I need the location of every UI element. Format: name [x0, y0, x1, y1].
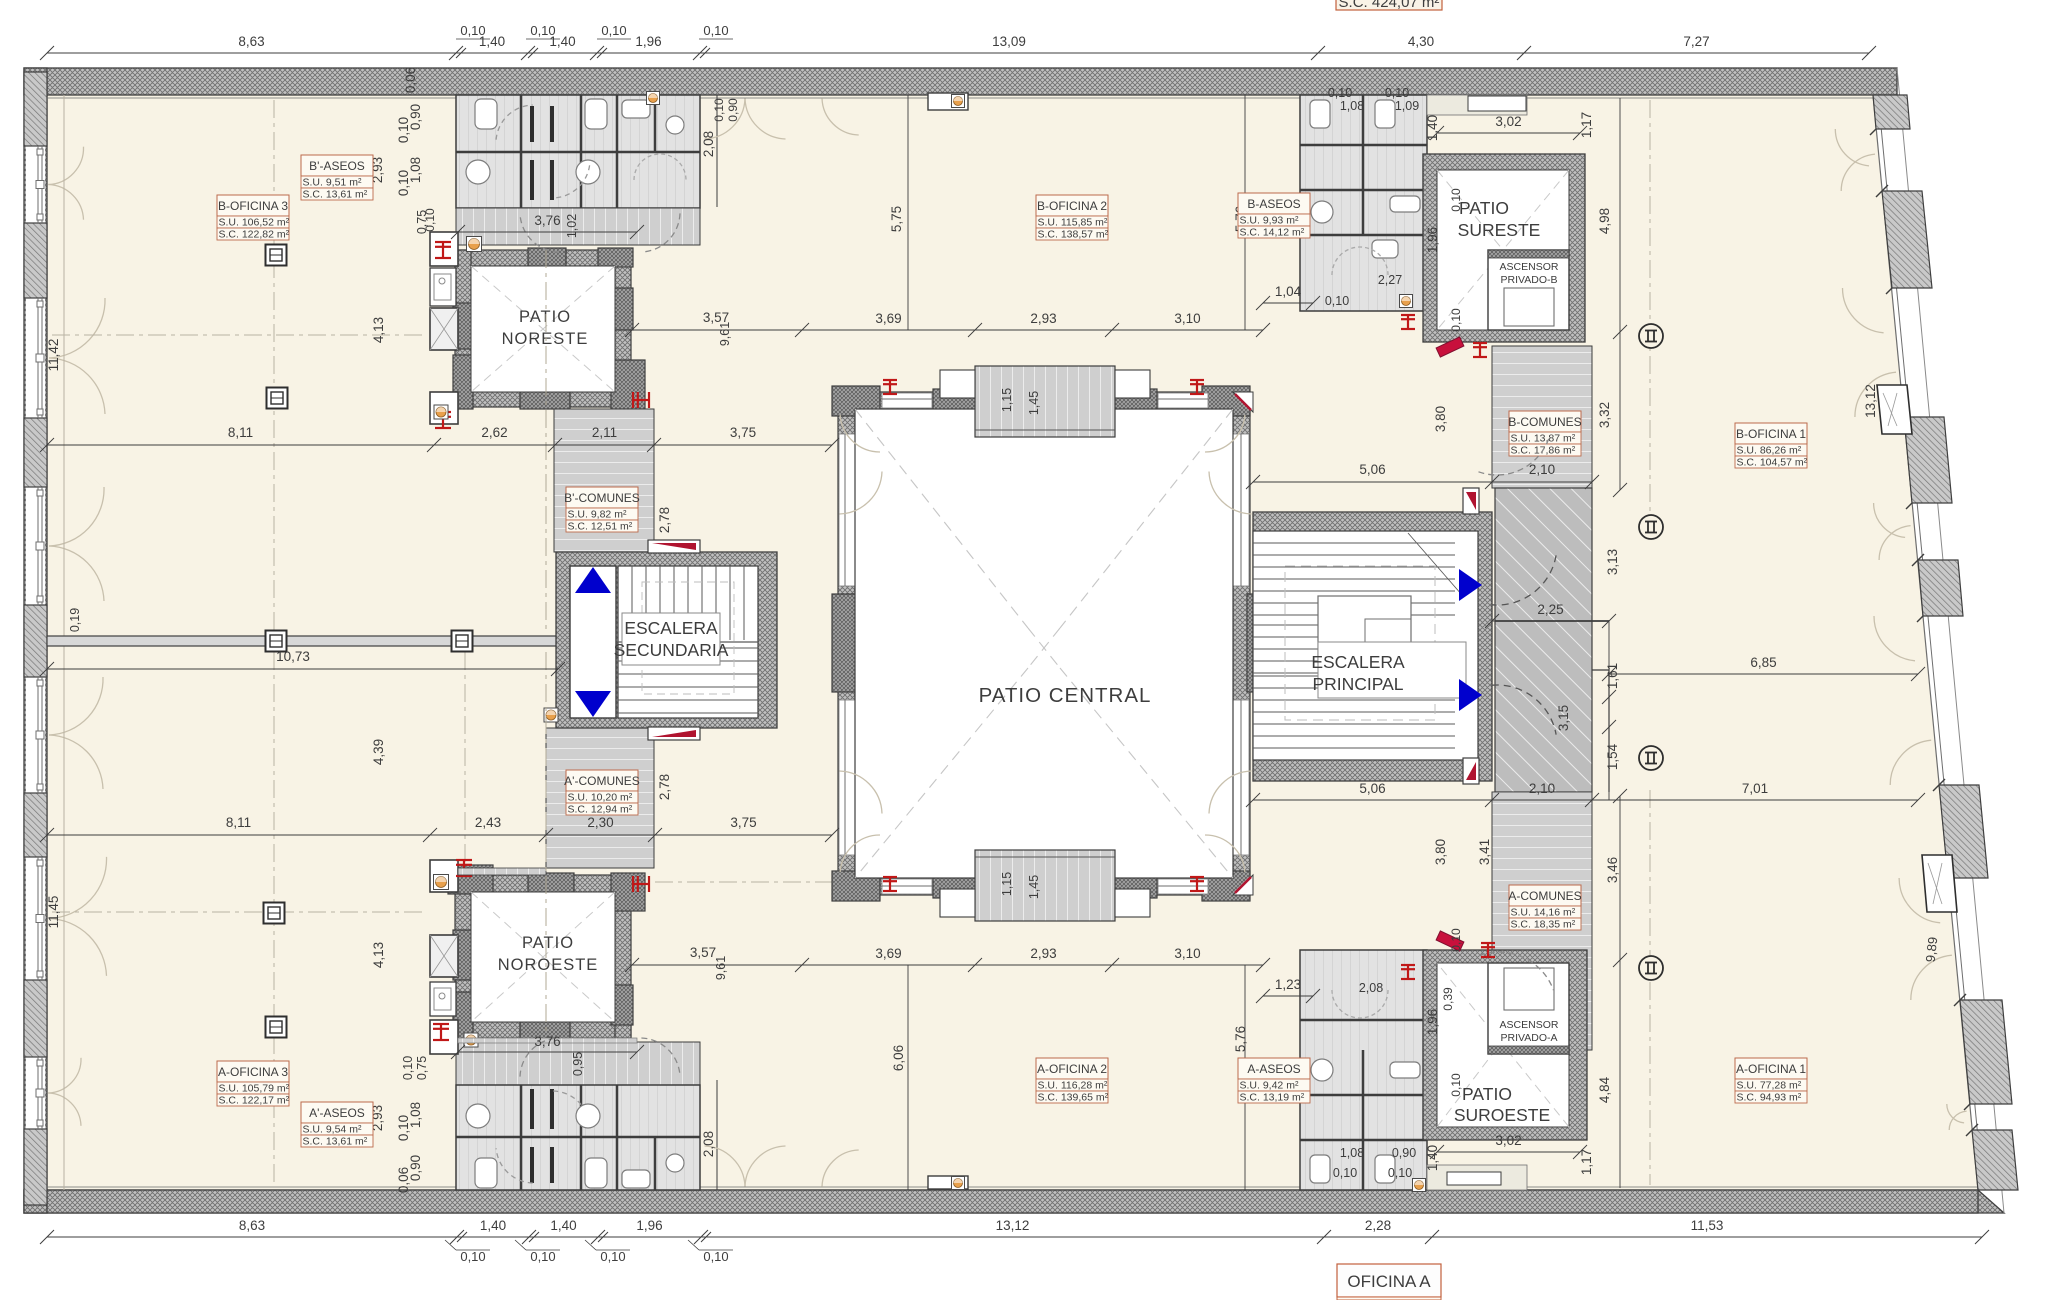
- svg-text:8,63: 8,63: [239, 1218, 265, 1233]
- svg-text:3,32: 3,32: [1597, 402, 1612, 428]
- svg-text:1,15: 1,15: [1000, 388, 1014, 412]
- svg-text:3,69: 3,69: [875, 311, 901, 326]
- svg-text:1,23: 1,23: [1275, 977, 1301, 992]
- svg-text:3,69: 3,69: [875, 946, 901, 961]
- svg-text:S.U. 115,85 m²: S.U. 115,85 m²: [1038, 217, 1108, 229]
- svg-text:2,28: 2,28: [1365, 1218, 1391, 1233]
- svg-text:0,10: 0,10: [1333, 1166, 1357, 1180]
- svg-text:S.U. 86,26 m²: S.U. 86,26 m²: [1737, 445, 1802, 457]
- svg-text:6,85: 6,85: [1750, 655, 1776, 670]
- svg-text:0,75: 0,75: [415, 1056, 429, 1080]
- svg-text:2,08: 2,08: [701, 1131, 716, 1157]
- svg-text:S.C. 12,94 m²: S.C. 12,94 m²: [568, 804, 633, 816]
- svg-text:PRIVADO-A: PRIVADO-A: [1501, 1032, 1558, 1044]
- svg-text:7,27: 7,27: [1683, 34, 1709, 49]
- svg-text:3,02: 3,02: [1495, 114, 1521, 129]
- svg-text:S.C. 104,57 m²: S.C. 104,57 m²: [1737, 457, 1808, 469]
- svg-text:0,10: 0,10: [1449, 1073, 1463, 1097]
- svg-text:1,45: 1,45: [1027, 391, 1041, 415]
- svg-text:4,84: 4,84: [1597, 1076, 1612, 1103]
- svg-text:10,73: 10,73: [276, 649, 310, 664]
- svg-text:PATIO CENTRAL: PATIO CENTRAL: [979, 684, 1152, 707]
- svg-text:0,10: 0,10: [460, 1249, 485, 1264]
- svg-text:2,78: 2,78: [657, 774, 672, 800]
- svg-text:0,10: 0,10: [600, 1249, 625, 1264]
- svg-text:PRINCIPAL: PRINCIPAL: [1312, 674, 1403, 694]
- svg-text:4,13: 4,13: [371, 317, 386, 343]
- svg-text:0,10: 0,10: [1388, 1166, 1412, 1180]
- svg-text:2,43: 2,43: [475, 815, 501, 830]
- svg-text:5,75: 5,75: [889, 206, 904, 232]
- svg-text:S.U. 9,93 m²: S.U. 9,93 m²: [1240, 215, 1299, 227]
- svg-text:1,04: 1,04: [1275, 284, 1302, 299]
- svg-text:2,78: 2,78: [657, 507, 672, 533]
- svg-text:A-OFICINA 2: A-OFICINA 2: [1037, 1062, 1107, 1076]
- svg-text:0,10: 0,10: [1449, 308, 1463, 332]
- svg-text:8,11: 8,11: [226, 815, 251, 830]
- svg-text:9,61: 9,61: [714, 956, 728, 980]
- svg-text:S.C. 18,35 m²: S.C. 18,35 m²: [1511, 919, 1576, 931]
- svg-text:0,10: 0,10: [530, 23, 555, 38]
- svg-text:1,40: 1,40: [1425, 1145, 1440, 1171]
- svg-text:SUROESTE: SUROESTE: [1454, 1105, 1550, 1125]
- svg-text:2,62: 2,62: [481, 425, 507, 440]
- svg-text:0,39: 0,39: [1441, 987, 1455, 1011]
- svg-text:2,93: 2,93: [1030, 311, 1056, 326]
- svg-text:3,80: 3,80: [1433, 406, 1448, 432]
- svg-text:B-OFICINA 2: B-OFICINA 2: [1037, 199, 1107, 213]
- svg-text:0,10: 0,10: [703, 1249, 728, 1264]
- svg-text:11,53: 11,53: [1691, 1218, 1724, 1233]
- svg-text:0,10: 0,10: [423, 208, 437, 232]
- svg-text:0,10: 0,10: [460, 23, 485, 38]
- svg-text:S.U. 116,28 m²: S.U. 116,28 m²: [1038, 1080, 1108, 1092]
- svg-text:B-OFICINA 1: B-OFICINA 1: [1736, 427, 1806, 441]
- svg-text:0,19: 0,19: [68, 608, 82, 632]
- svg-text:ASCENSOR: ASCENSOR: [1500, 261, 1559, 273]
- svg-text:2,08: 2,08: [1359, 981, 1383, 995]
- svg-text:1,15: 1,15: [1000, 872, 1014, 896]
- svg-text:0,06: 0,06: [403, 67, 418, 93]
- svg-text:0,06: 0,06: [396, 1167, 411, 1193]
- svg-text:9,61: 9,61: [718, 322, 732, 346]
- svg-text:A-OFICINA 1: A-OFICINA 1: [1736, 1062, 1806, 1076]
- svg-text:ESCALERA: ESCALERA: [1311, 652, 1405, 672]
- svg-text:B-OFICINA 3: B-OFICINA 3: [218, 199, 288, 213]
- svg-text:5,06: 5,06: [1359, 781, 1385, 796]
- svg-text:S.U. 9,54 m²: S.U. 9,54 m²: [303, 1124, 362, 1136]
- svg-text:3,13: 3,13: [1605, 549, 1620, 575]
- svg-text:3,15: 3,15: [1556, 705, 1571, 731]
- svg-text:1,08: 1,08: [1340, 99, 1364, 113]
- svg-text:1,96: 1,96: [635, 34, 661, 49]
- svg-text:S.C. 122,82 m²: S.C. 122,82 m²: [219, 229, 290, 241]
- svg-text:0,10: 0,10: [396, 1115, 411, 1141]
- svg-text:2,93: 2,93: [1030, 946, 1056, 961]
- svg-text:2,25: 2,25: [1537, 602, 1563, 617]
- svg-text:ASCENSOR: ASCENSOR: [1500, 1019, 1559, 1031]
- svg-text:0,10: 0,10: [1385, 86, 1409, 100]
- svg-text:3,76: 3,76: [534, 1034, 560, 1049]
- svg-text:5,06: 5,06: [1359, 462, 1385, 477]
- svg-text:0,95: 0,95: [571, 1052, 585, 1076]
- svg-text:S.C. 13,61 m²: S.C. 13,61 m²: [303, 189, 368, 201]
- svg-text:S.C. 13,19 m²: S.C. 13,19 m²: [1240, 1092, 1305, 1104]
- svg-text:0,10: 0,10: [1449, 928, 1463, 952]
- svg-text:S.U. 13,87 m²: S.U. 13,87 m²: [1511, 433, 1576, 445]
- svg-text:0,10: 0,10: [401, 1056, 415, 1080]
- svg-text:3,10: 3,10: [1174, 311, 1200, 326]
- svg-text:0,10: 0,10: [396, 117, 411, 143]
- svg-text:6,06: 6,06: [891, 1045, 906, 1071]
- svg-text:0,10: 0,10: [601, 23, 626, 38]
- svg-text:1,17: 1,17: [1579, 112, 1594, 138]
- svg-text:B'-ASEOS: B'-ASEOS: [309, 159, 365, 173]
- svg-text:A'-COMUNES: A'-COMUNES: [564, 774, 640, 788]
- svg-text:11,42: 11,42: [46, 339, 61, 372]
- svg-text:3,10: 3,10: [1174, 946, 1200, 961]
- svg-text:NORESTE: NORESTE: [502, 330, 589, 348]
- svg-text:OFICINA A: OFICINA A: [1347, 1272, 1431, 1291]
- svg-text:0,10: 0,10: [1325, 294, 1349, 308]
- svg-text:S.U. 77,28 m²: S.U. 77,28 m²: [1737, 1080, 1802, 1092]
- svg-text:S.C. 122,17 m²: S.C. 122,17 m²: [219, 1095, 290, 1107]
- svg-text:1,45: 1,45: [1027, 875, 1041, 899]
- svg-text:1,02: 1,02: [565, 214, 579, 238]
- svg-text:S.U. 14,16 m²: S.U. 14,16 m²: [1511, 907, 1576, 919]
- svg-text:0,10: 0,10: [396, 170, 411, 196]
- svg-text:S.C. 94,93 m²: S.C. 94,93 m²: [1737, 1092, 1802, 1104]
- svg-text:1,96: 1,96: [1425, 227, 1440, 253]
- svg-text:2,08: 2,08: [701, 131, 716, 157]
- svg-text:S.U. 106,52 m²: S.U. 106,52 m²: [219, 217, 290, 229]
- svg-text:8,63: 8,63: [238, 34, 264, 49]
- svg-text:2,30: 2,30: [587, 815, 613, 830]
- svg-text:1,40: 1,40: [550, 1218, 576, 1233]
- svg-text:3,41: 3,41: [1477, 839, 1492, 865]
- svg-text:PATIO: PATIO: [522, 934, 574, 952]
- svg-text:0,10: 0,10: [530, 1249, 555, 1264]
- svg-text:B-COMUNES: B-COMUNES: [1508, 415, 1581, 429]
- svg-text:2,10: 2,10: [1529, 462, 1555, 477]
- svg-text:2,27: 2,27: [1378, 273, 1402, 287]
- svg-text:S.C. 12,51 m²: S.C. 12,51 m²: [568, 521, 633, 533]
- svg-text:9,89: 9,89: [1923, 936, 1941, 963]
- svg-text:1,40: 1,40: [480, 1218, 506, 1233]
- svg-text:3,80: 3,80: [1433, 839, 1448, 865]
- svg-text:ESCALERA: ESCALERA: [624, 618, 718, 638]
- svg-text:S.C. 14,12 m²: S.C. 14,12 m²: [1240, 227, 1305, 239]
- svg-text:PATIO: PATIO: [519, 308, 571, 326]
- svg-text:13,12: 13,12: [1863, 384, 1878, 418]
- svg-text:0,90: 0,90: [726, 98, 740, 122]
- svg-text:5,76: 5,76: [1233, 1026, 1248, 1052]
- svg-text:SECUNDARIA: SECUNDARIA: [614, 640, 729, 660]
- svg-text:B'-COMUNES: B'-COMUNES: [564, 491, 640, 505]
- svg-text:13,12: 13,12: [996, 1218, 1030, 1233]
- svg-text:1,17: 1,17: [1579, 1149, 1594, 1175]
- svg-text:1,61: 1,61: [1605, 663, 1620, 689]
- svg-text:0,10: 0,10: [703, 23, 728, 38]
- svg-text:PATIO: PATIO: [1459, 198, 1509, 218]
- svg-text:3,75: 3,75: [730, 815, 756, 830]
- svg-text:A-OFICINA 3: A-OFICINA 3: [218, 1065, 288, 1079]
- svg-text:13,09: 13,09: [992, 34, 1026, 49]
- svg-text:NOROESTE: NOROESTE: [498, 956, 599, 974]
- svg-text:1,96: 1,96: [636, 1218, 662, 1233]
- svg-text:S.C. 139,65 m²: S.C. 139,65 m²: [1038, 1092, 1109, 1104]
- svg-text:S.U. 105,79 m²: S.U. 105,79 m²: [219, 1083, 290, 1095]
- svg-text:1,96: 1,96: [1425, 1009, 1440, 1035]
- svg-text:3,76: 3,76: [534, 213, 560, 228]
- svg-text:1,09: 1,09: [1395, 99, 1419, 113]
- svg-text:0,10: 0,10: [1449, 188, 1463, 212]
- svg-text:1,08: 1,08: [1340, 1146, 1364, 1160]
- svg-text:A-ASEOS: A-ASEOS: [1247, 1062, 1300, 1076]
- svg-text:0,10: 0,10: [1328, 86, 1352, 100]
- svg-text:B-ASEOS: B-ASEOS: [1247, 197, 1300, 211]
- svg-text:11,45: 11,45: [46, 896, 61, 929]
- svg-text:2,10: 2,10: [1529, 781, 1555, 796]
- svg-text:S.U. 9,51 m²: S.U. 9,51 m²: [303, 177, 362, 189]
- svg-text:PRIVADO-B: PRIVADO-B: [1501, 274, 1558, 286]
- svg-text:1,54: 1,54: [1605, 743, 1620, 770]
- svg-text:3,57: 3,57: [690, 945, 716, 960]
- svg-text:0,90: 0,90: [1392, 1146, 1416, 1160]
- svg-text:PATIO: PATIO: [1462, 1084, 1512, 1104]
- svg-text:7,01: 7,01: [1742, 781, 1768, 796]
- svg-text:3,75: 3,75: [730, 425, 756, 440]
- svg-text:3,02: 3,02: [1495, 1133, 1521, 1148]
- svg-text:8,11: 8,11: [228, 425, 253, 440]
- svg-text:4,98: 4,98: [1597, 208, 1612, 234]
- svg-text:A-COMUNES: A-COMUNES: [1508, 889, 1581, 903]
- svg-text:S.C. 424,07 m²: S.C. 424,07 m²: [1339, 0, 1440, 11]
- svg-text:3,46: 3,46: [1605, 857, 1620, 883]
- svg-text:S.U. 9,82 m²: S.U. 9,82 m²: [568, 509, 627, 521]
- svg-text:0,10: 0,10: [712, 98, 726, 122]
- svg-text:4,30: 4,30: [1408, 34, 1434, 49]
- svg-text:2,11: 2,11: [592, 425, 617, 440]
- svg-text:S.U. 9,42 m²: S.U. 9,42 m²: [1240, 1080, 1299, 1092]
- svg-text:S.U. 10,20 m²: S.U. 10,20 m²: [568, 792, 633, 804]
- svg-text:SURESTE: SURESTE: [1458, 220, 1541, 240]
- svg-text:S.C. 138,57 m²: S.C. 138,57 m²: [1038, 229, 1109, 241]
- svg-text:S.C. 13,61 m²: S.C. 13,61 m²: [303, 1136, 368, 1148]
- svg-text:4,13: 4,13: [371, 942, 386, 968]
- svg-text:4,39: 4,39: [371, 739, 386, 765]
- svg-text:A'-ASEOS: A'-ASEOS: [309, 1106, 365, 1120]
